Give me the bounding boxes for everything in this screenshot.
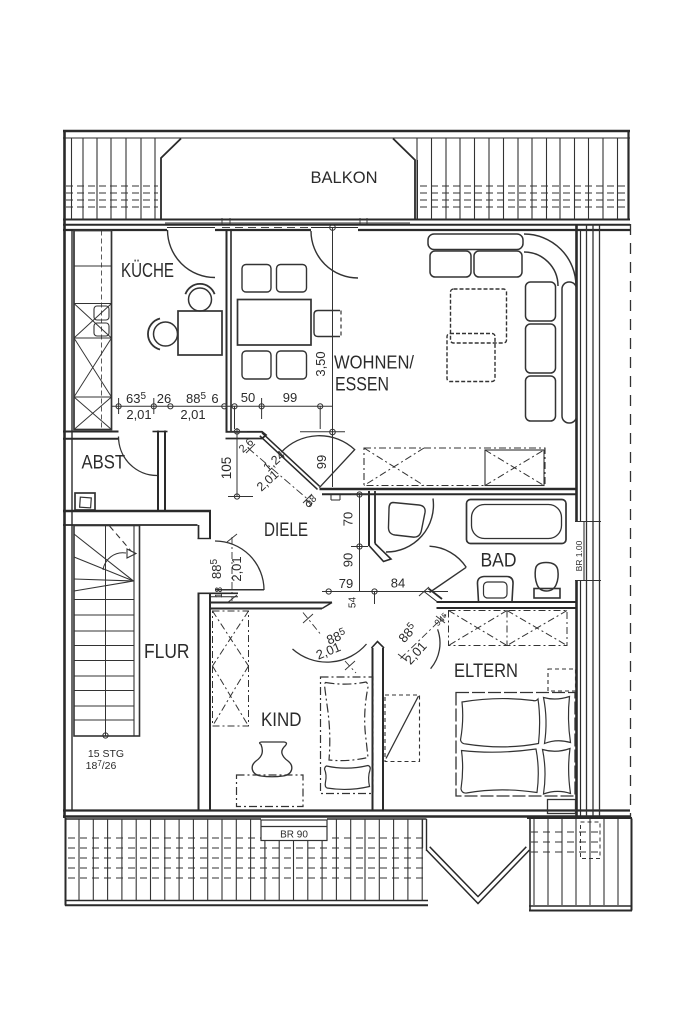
svg-text:WOHNEN/: WOHNEN/: [334, 352, 415, 373]
svg-text:DIELE: DIELE: [264, 520, 308, 541]
svg-text:54: 54: [348, 597, 359, 609]
svg-text:BR 1.00: BR 1.00: [574, 540, 584, 571]
svg-text:26: 26: [157, 391, 171, 406]
svg-text:2,01: 2,01: [126, 407, 151, 422]
svg-text:99: 99: [314, 455, 329, 469]
svg-text:ABST: ABST: [82, 453, 126, 474]
svg-text:15 STG: 15 STG: [88, 748, 124, 760]
svg-text:3,50: 3,50: [313, 351, 328, 376]
svg-text:BR 90: BR 90: [280, 830, 308, 841]
svg-text:79: 79: [339, 576, 353, 591]
svg-text:187/26: 187/26: [86, 759, 117, 772]
svg-text:ELTERN: ELTERN: [454, 661, 518, 682]
svg-text:99: 99: [283, 390, 297, 405]
svg-text:KIND: KIND: [261, 710, 302, 731]
svg-text:2,01: 2,01: [229, 556, 244, 581]
svg-text:105: 105: [219, 457, 234, 480]
svg-text:FLUR: FLUR: [144, 641, 190, 663]
svg-text:BAD: BAD: [481, 551, 517, 572]
svg-text:BALKON: BALKON: [311, 168, 378, 187]
svg-text:90: 90: [341, 553, 356, 567]
svg-text:70: 70: [341, 512, 356, 526]
svg-text:6: 6: [211, 391, 218, 406]
svg-text:ESSEN: ESSEN: [335, 375, 389, 396]
svg-text:50: 50: [241, 390, 255, 405]
svg-text:KÜCHE: KÜCHE: [121, 260, 174, 282]
svg-text:2,01: 2,01: [180, 407, 205, 422]
svg-text:84: 84: [391, 576, 405, 591]
